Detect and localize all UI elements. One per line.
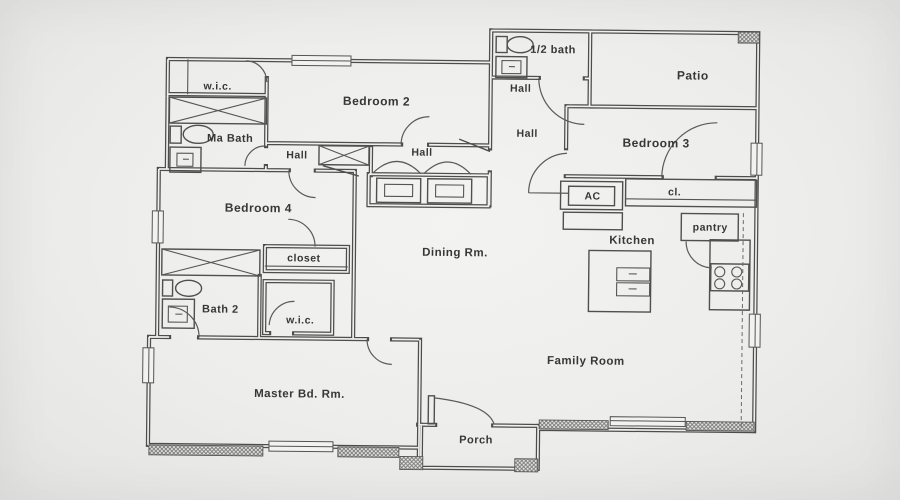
room-label-bath-2: Bath 2 [202, 303, 239, 315]
sink-icon [162, 299, 194, 328]
sink-icon [496, 56, 527, 77]
hall-closet [625, 179, 756, 207]
room-label-family: Family Room [547, 355, 625, 368]
porch-pillar-left [400, 456, 423, 469]
floor-plan-photo: w.i.c. Ma Bath Bedroom 2 Hall Hall 1/2 b… [0, 0, 900, 500]
room-label-bedroom-2: Bedroom 2 [343, 94, 410, 109]
room-label-pantry: pantry [693, 222, 728, 234]
room-label-cl: cl. [668, 186, 681, 198]
room-label-kitchen: Kitchen [609, 235, 655, 247]
room-label-ac: AC [584, 190, 600, 202]
floor-plan-drawing: w.i.c. Ma Bath Bedroom 2 Hall Hall 1/2 b… [0, 0, 900, 500]
room-label-hall-east: Hall [517, 128, 538, 140]
closet-shelf-line [265, 266, 348, 267]
room-label-wic-lower: w.i.c. [285, 314, 314, 326]
room-label-closet: closet [287, 252, 320, 264]
kitchen-island-icon [588, 250, 651, 312]
room-label-dining: Dining Rm. [422, 247, 488, 260]
stove-icon [709, 240, 750, 310]
family-sill-hatch-left [539, 420, 608, 430]
room-label-ma-bath: Ma Bath [207, 132, 253, 144]
room-label-hall-center: Hall [411, 147, 432, 159]
master-sill-hatch-left [149, 445, 263, 456]
room-label-hall-west: Hall [286, 149, 307, 161]
room-label-half-bath: 1/2 bath [530, 44, 576, 56]
room-label-hall-upper: Hall [510, 83, 531, 95]
master-sill-hatch-right [338, 447, 399, 458]
fixtures [160, 33, 758, 427]
room-label-patio: Patio [677, 68, 709, 82]
upper-cabinet-dashed-line [741, 213, 743, 427]
family-sill-hatch-right [686, 421, 754, 431]
bathtub-icon [162, 249, 260, 276]
washer-icon [376, 178, 420, 202]
ac-closet [560, 181, 622, 230]
linen-closet-icon [319, 146, 369, 166]
toilet-icon [496, 36, 533, 52]
front-door-panel [428, 396, 434, 424]
bathtub-icon [169, 97, 266, 124]
room-label-bedroom-3: Bedroom 3 [622, 136, 689, 151]
room-label-wic-top: w.i.c. [202, 80, 231, 92]
porch-pillar-right [515, 459, 538, 472]
toilet-icon [163, 280, 202, 296]
room-label-porch: Porch [459, 434, 493, 446]
dryer-icon [427, 179, 471, 203]
patio-corner-hatch [738, 32, 759, 43]
room-label-bedroom-4: Bedroom 4 [225, 201, 292, 216]
room-label-master: Master Bd. Rm. [254, 388, 345, 401]
